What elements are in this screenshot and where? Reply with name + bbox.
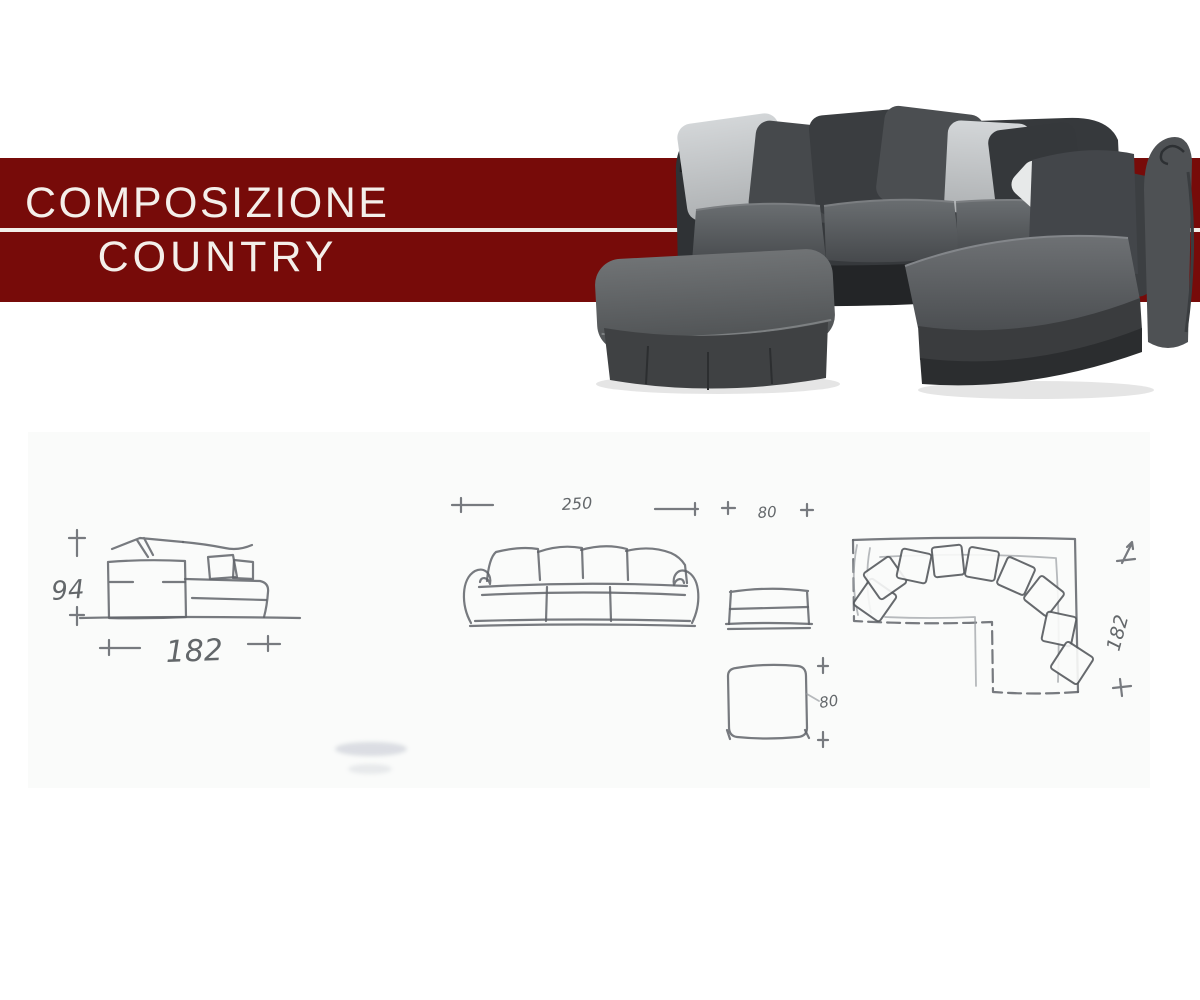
title-line-1: COMPOSIZIONE [25, 182, 410, 225]
dimension-arrow [1117, 542, 1135, 563]
dimension-arrow [100, 640, 140, 655]
ground-line [470, 625, 695, 627]
plan-cushion [965, 547, 1000, 582]
base-line [475, 620, 690, 622]
width-dimension-label: 182 [165, 633, 223, 670]
back-pillow-lines [112, 538, 183, 557]
catalog-page: COMPOSIZIONE COUNTRY [0, 0, 1200, 1000]
sketch-pouf-front [726, 589, 812, 629]
sofa-product-photo [588, 60, 1200, 400]
plan-cushion [896, 548, 932, 584]
dimension-arrow [70, 607, 84, 625]
dimension-arrow [1113, 679, 1131, 696]
plan-depth-label: 182 [1103, 613, 1134, 654]
dimension-arrow [655, 503, 698, 515]
pouf-depth-label: 80 [818, 691, 839, 711]
seat-line [192, 598, 266, 600]
pouf-mid-line [730, 607, 808, 609]
plan-cushion [932, 545, 965, 578]
dimension-arrow [722, 502, 735, 514]
height-dimension-label: 94 [50, 575, 85, 607]
back-top-line [183, 542, 252, 549]
seat-lines [479, 584, 687, 595]
pillow-outline [626, 548, 687, 583]
sketch-side-view: 94 182 [50, 530, 300, 670]
sketch-pouf-top: 80 [727, 658, 839, 747]
dimension-arrow [248, 636, 280, 651]
dimension-sketches: 94 182 250 80 [30, 430, 1160, 790]
dimension-arrow [452, 498, 493, 512]
plan-cushions [853, 545, 1094, 686]
pillow-outline [487, 548, 540, 581]
sofa-right-arm [1144, 137, 1192, 348]
sketch-plan-view: 182 [853, 538, 1135, 696]
plan-cushion [1050, 641, 1094, 685]
pillow-outline [581, 546, 628, 580]
pouf-square-outline [728, 665, 807, 739]
dimension-arrow [818, 732, 828, 747]
pillow-outline [538, 547, 583, 578]
title-line-2: COUNTRY [25, 236, 410, 279]
sofa-back-outline [108, 560, 186, 618]
pouf-base-lines [726, 623, 812, 629]
banner-title: COMPOSIZIONE COUNTRY [25, 158, 410, 302]
dimension-arrow [69, 530, 85, 556]
dimension-arrow [818, 658, 828, 673]
sketch-front-view: 250 80 [452, 493, 813, 626]
sofa-width-label: 250 [561, 493, 592, 514]
dimension-arrow [801, 504, 813, 516]
pouf-width-label: 80 [757, 503, 777, 522]
plan-cushion [1041, 611, 1077, 647]
seat-cushion [824, 200, 960, 263]
